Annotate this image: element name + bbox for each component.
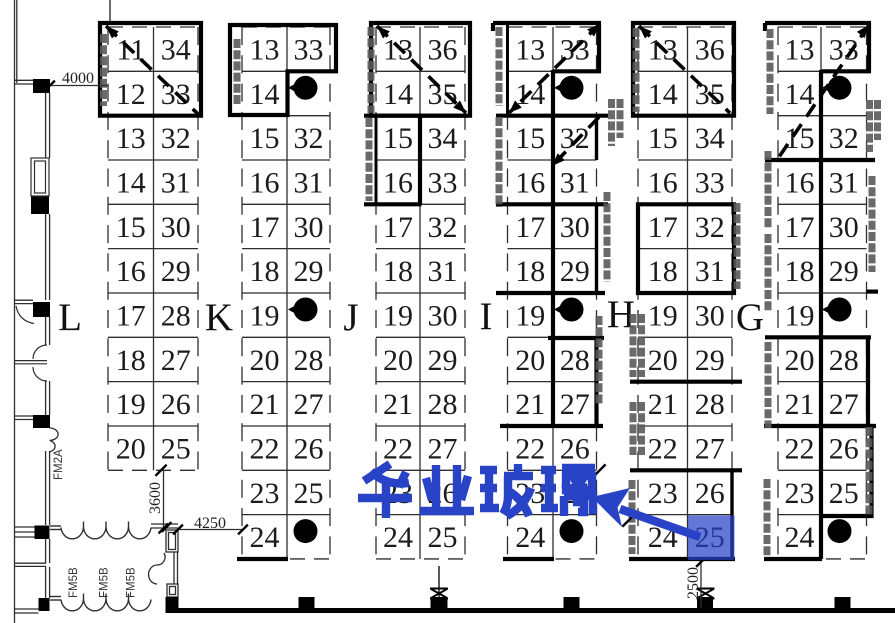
svg-text:18: 18 bbox=[250, 255, 280, 288]
svg-text:25: 25 bbox=[294, 477, 324, 510]
svg-text:36: 36 bbox=[428, 34, 458, 67]
svg-text:27: 27 bbox=[560, 388, 590, 421]
svg-text:32: 32 bbox=[428, 211, 458, 244]
svg-text:29: 29 bbox=[695, 344, 725, 377]
svg-text:27: 27 bbox=[294, 388, 324, 421]
svg-text:27: 27 bbox=[695, 433, 725, 466]
svg-text:FM5B: FM5B bbox=[126, 567, 138, 598]
svg-text:31: 31 bbox=[161, 167, 191, 200]
svg-text:31: 31 bbox=[829, 167, 859, 200]
svg-text:18: 18 bbox=[648, 255, 678, 288]
svg-text:32: 32 bbox=[829, 122, 859, 155]
svg-text:FM2A: FM2A bbox=[53, 449, 65, 480]
svg-text:J: J bbox=[343, 296, 358, 339]
svg-text:13: 13 bbox=[383, 34, 413, 67]
svg-text:24: 24 bbox=[383, 521, 413, 554]
svg-text:16: 16 bbox=[383, 167, 413, 200]
svg-text:19: 19 bbox=[250, 300, 280, 333]
svg-text:18: 18 bbox=[515, 255, 545, 288]
svg-text:29: 29 bbox=[428, 344, 458, 377]
svg-text:34: 34 bbox=[161, 34, 191, 67]
svg-text:22: 22 bbox=[515, 433, 545, 466]
svg-text:23: 23 bbox=[785, 477, 815, 510]
svg-text:15: 15 bbox=[116, 211, 146, 244]
svg-text:22: 22 bbox=[648, 433, 678, 466]
svg-text:26: 26 bbox=[829, 433, 859, 466]
svg-text:28: 28 bbox=[829, 344, 859, 377]
svg-text:25: 25 bbox=[428, 521, 458, 554]
svg-text:K: K bbox=[205, 296, 233, 339]
svg-text:34: 34 bbox=[695, 122, 725, 155]
svg-text:29: 29 bbox=[294, 255, 324, 288]
svg-text:I: I bbox=[480, 295, 493, 338]
svg-text:27: 27 bbox=[829, 388, 859, 421]
svg-text:27: 27 bbox=[428, 433, 458, 466]
svg-text:21: 21 bbox=[785, 388, 815, 421]
svg-text:13: 13 bbox=[116, 122, 146, 155]
svg-text:26: 26 bbox=[161, 388, 191, 421]
svg-text:21: 21 bbox=[648, 388, 678, 421]
svg-text:30: 30 bbox=[294, 211, 324, 244]
svg-text:FM5B: FM5B bbox=[68, 567, 80, 598]
svg-text:26: 26 bbox=[695, 477, 725, 510]
svg-text:26: 26 bbox=[560, 433, 590, 466]
svg-text:24: 24 bbox=[515, 521, 545, 554]
svg-text:31: 31 bbox=[695, 255, 725, 288]
svg-text:20: 20 bbox=[648, 344, 678, 377]
svg-text:27: 27 bbox=[161, 344, 191, 377]
svg-text:18: 18 bbox=[785, 255, 815, 288]
svg-text:14: 14 bbox=[648, 78, 678, 111]
svg-text:13: 13 bbox=[250, 34, 280, 67]
svg-text:33: 33 bbox=[428, 167, 458, 200]
svg-text:31: 31 bbox=[294, 167, 324, 200]
svg-text:22: 22 bbox=[383, 433, 413, 466]
svg-text:15: 15 bbox=[648, 122, 678, 155]
svg-text:17: 17 bbox=[785, 211, 815, 244]
svg-text:32: 32 bbox=[161, 122, 191, 155]
svg-text:24: 24 bbox=[250, 521, 280, 554]
svg-text:17: 17 bbox=[383, 211, 413, 244]
svg-text:20: 20 bbox=[250, 344, 280, 377]
svg-text:32: 32 bbox=[695, 211, 725, 244]
svg-text:22: 22 bbox=[785, 433, 815, 466]
svg-text:29: 29 bbox=[560, 255, 590, 288]
svg-text:24: 24 bbox=[785, 521, 815, 554]
svg-text:23: 23 bbox=[648, 477, 678, 510]
svg-text:20: 20 bbox=[383, 344, 413, 377]
svg-text:20: 20 bbox=[785, 344, 815, 377]
svg-text:28: 28 bbox=[560, 344, 590, 377]
svg-text:18: 18 bbox=[116, 344, 146, 377]
svg-text:16: 16 bbox=[116, 255, 146, 288]
svg-text:36: 36 bbox=[695, 34, 725, 67]
svg-text:29: 29 bbox=[161, 255, 191, 288]
svg-text:25: 25 bbox=[829, 477, 859, 510]
svg-text:28: 28 bbox=[161, 300, 191, 333]
svg-text:19: 19 bbox=[116, 388, 146, 421]
svg-text:20: 20 bbox=[116, 433, 146, 466]
svg-text:32: 32 bbox=[560, 122, 590, 155]
svg-text:20: 20 bbox=[515, 344, 545, 377]
svg-text:16: 16 bbox=[515, 167, 545, 200]
svg-text:33: 33 bbox=[294, 34, 324, 67]
svg-text:17: 17 bbox=[250, 211, 280, 244]
svg-text:31: 31 bbox=[560, 167, 590, 200]
svg-text:13: 13 bbox=[515, 34, 545, 67]
svg-text:14: 14 bbox=[250, 78, 280, 111]
svg-text:2500: 2500 bbox=[685, 567, 702, 599]
svg-text:16: 16 bbox=[785, 167, 815, 200]
svg-text:21: 21 bbox=[250, 388, 280, 421]
svg-text:35: 35 bbox=[428, 78, 458, 111]
svg-text:22: 22 bbox=[250, 433, 280, 466]
svg-text:31: 31 bbox=[428, 255, 458, 288]
svg-text:15: 15 bbox=[383, 122, 413, 155]
svg-text:32: 32 bbox=[294, 122, 324, 155]
svg-text:23: 23 bbox=[250, 477, 280, 510]
svg-text:3600: 3600 bbox=[147, 482, 164, 514]
svg-text:12: 12 bbox=[116, 78, 146, 111]
svg-text:14: 14 bbox=[383, 78, 413, 111]
svg-text:13: 13 bbox=[785, 34, 815, 67]
svg-text:14: 14 bbox=[116, 167, 146, 200]
svg-text:21: 21 bbox=[383, 388, 413, 421]
svg-text:17: 17 bbox=[515, 211, 545, 244]
svg-text:34: 34 bbox=[428, 122, 458, 155]
svg-text:14: 14 bbox=[785, 78, 815, 111]
svg-text:17: 17 bbox=[116, 300, 146, 333]
svg-text:19: 19 bbox=[648, 300, 678, 333]
svg-text:30: 30 bbox=[560, 211, 590, 244]
svg-text:17: 17 bbox=[648, 211, 678, 244]
svg-text:4000: 4000 bbox=[62, 70, 94, 87]
svg-text:30: 30 bbox=[428, 300, 458, 333]
svg-text:4250: 4250 bbox=[194, 515, 226, 532]
svg-text:18: 18 bbox=[383, 255, 413, 288]
svg-text:25: 25 bbox=[161, 433, 191, 466]
svg-text:33: 33 bbox=[695, 167, 725, 200]
svg-text:28: 28 bbox=[428, 388, 458, 421]
svg-text:19: 19 bbox=[785, 300, 815, 333]
svg-text:30: 30 bbox=[829, 211, 859, 244]
svg-text:26: 26 bbox=[294, 433, 324, 466]
svg-text:16: 16 bbox=[250, 167, 280, 200]
svg-text:L: L bbox=[58, 296, 82, 339]
svg-text:33: 33 bbox=[829, 34, 859, 67]
svg-text:28: 28 bbox=[294, 344, 324, 377]
svg-text:15: 15 bbox=[515, 122, 545, 155]
svg-text:15: 15 bbox=[250, 122, 280, 155]
svg-text:16: 16 bbox=[648, 167, 678, 200]
svg-text:21: 21 bbox=[515, 388, 545, 421]
svg-text:29: 29 bbox=[829, 255, 859, 288]
svg-text:30: 30 bbox=[695, 300, 725, 333]
svg-text:28: 28 bbox=[695, 388, 725, 421]
svg-text:FM5B: FM5B bbox=[99, 567, 111, 598]
svg-text:19: 19 bbox=[515, 300, 545, 333]
svg-text:19: 19 bbox=[383, 300, 413, 333]
svg-text:30: 30 bbox=[161, 211, 191, 244]
svg-text:G: G bbox=[736, 296, 764, 339]
